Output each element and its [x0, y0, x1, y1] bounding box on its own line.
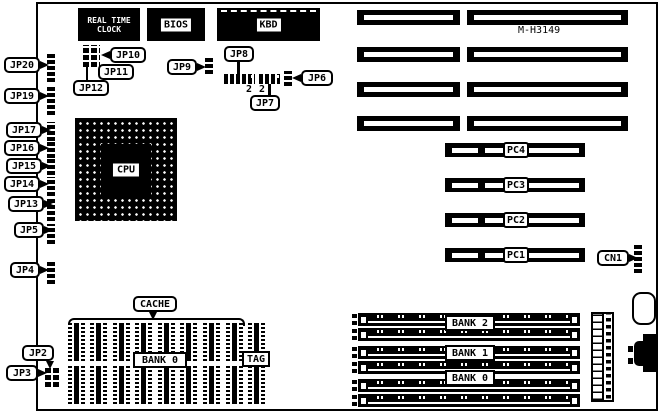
jp3-callout: JP3 — [6, 365, 38, 381]
pc2-label: PC2 — [503, 212, 529, 228]
cache-chip — [68, 323, 85, 361]
jp7-pins — [259, 74, 280, 84]
memory-bank0-label: BANK 0 — [445, 370, 495, 386]
cache-chip — [226, 366, 243, 404]
jp19-callout: JP19 — [4, 88, 40, 104]
isa-slot — [467, 116, 628, 131]
motherboard-diagram: REAL TIME CLOCK BIOS KBD M-H3149 PC4 PC3… — [0, 0, 660, 415]
keyboard-din-step — [634, 341, 645, 366]
jp6-callout: JP6 — [301, 70, 333, 86]
jp10-callout: JP10 — [110, 47, 146, 63]
jp20-callout: JP20 — [4, 57, 40, 73]
jp14-callout: JP14 — [4, 176, 40, 192]
jp17-pointer-icon — [42, 126, 51, 134]
cache-pointer-icon — [149, 312, 157, 320]
jp16-pointer-icon — [40, 144, 49, 152]
cache-chip — [135, 366, 152, 404]
cache-chip-column — [68, 323, 85, 404]
isa-slot — [357, 116, 460, 131]
jp8-pins — [224, 74, 255, 84]
cache-chip — [90, 323, 107, 361]
jp2-jp3-pins — [45, 367, 60, 387]
jp8-pin2-label: 2 — [246, 84, 252, 95]
isa-slot — [357, 82, 460, 97]
simm-slot — [358, 394, 580, 407]
rtc-chip-label: REAL TIME CLOCK — [78, 8, 140, 41]
kbd-chip-label: KBD — [256, 18, 280, 31]
jp17-callout: JP17 — [6, 122, 42, 138]
jp5-pointer-icon — [44, 226, 53, 234]
isa-slot — [467, 10, 628, 25]
cache-chip-column — [226, 323, 243, 404]
jp16-callout: JP16 — [4, 140, 40, 156]
pc4-label: PC4 — [503, 142, 529, 158]
board-model-label: M-H3149 — [518, 25, 560, 36]
jp9-pointer-icon — [197, 63, 206, 71]
isa-slot — [357, 10, 460, 25]
jp13-callout: JP13 — [8, 196, 44, 212]
jp6-pins — [284, 71, 292, 86]
jp9-pins — [205, 57, 213, 74]
bios-chip: BIOS — [147, 8, 205, 41]
power-connector — [591, 312, 614, 402]
isa-slot — [357, 47, 460, 62]
keyboard-din-pin — [628, 346, 633, 352]
jp4-callout: JP4 — [10, 262, 40, 278]
kbd-dashed-line — [221, 10, 316, 12]
jp3-pointer-icon — [38, 369, 47, 377]
jp19-pointer-icon — [40, 92, 49, 100]
jp2-callout: JP2 — [22, 345, 54, 361]
tag-label: TAG — [242, 351, 270, 367]
memory-bank1-label: BANK 1 — [445, 345, 495, 361]
pc3-label: PC3 — [503, 177, 529, 193]
bios-chip-label: BIOS — [161, 18, 191, 31]
jp15-callout: JP15 — [6, 158, 42, 174]
jp4-pointer-icon — [40, 266, 49, 274]
cache-chip — [203, 323, 220, 361]
cache-callout: CACHE — [133, 296, 177, 312]
cache-chip — [68, 366, 85, 404]
pci-slot-pc4: PC4 — [445, 143, 585, 157]
jp14-pointer-icon — [40, 180, 49, 188]
jp8-pointer-line — [237, 61, 240, 74]
rtc-chip: REAL TIME CLOCK — [78, 8, 140, 41]
cache-chip — [158, 366, 175, 404]
cache-bank0-label: BANK 0 — [133, 352, 187, 368]
jp12-callout: JP12 — [73, 80, 109, 96]
pci-slot-pc2: PC2 — [445, 213, 585, 227]
isa-slot — [467, 82, 628, 97]
jp9-callout: JP9 — [167, 59, 197, 75]
jp10-pointer-icon — [101, 51, 110, 59]
cache-chip — [226, 323, 243, 361]
cache-chip-column — [113, 323, 130, 404]
cache-chip — [113, 323, 130, 361]
cn1-pointer-icon — [629, 254, 638, 262]
memory-bank2-label: BANK 2 — [445, 315, 495, 331]
cache-chip-column — [90, 323, 107, 404]
jp8-callout: JP8 — [224, 46, 254, 62]
cn1-callout: CN1 — [597, 250, 629, 266]
pci-slot-pc1: PC1 — [445, 248, 585, 262]
jp11-callout: JP11 — [98, 64, 134, 80]
keyboard-controller-chip: KBD — [217, 8, 320, 41]
keyboard-din-body — [643, 334, 658, 372]
jp19-pins — [47, 86, 55, 115]
cache-chip — [113, 366, 130, 404]
jp6-pointer-icon — [292, 74, 301, 82]
isa-slot — [467, 47, 628, 62]
jp13-pointer-icon — [44, 200, 53, 208]
cpu-label: CPU — [113, 163, 139, 176]
cache-chip-column — [203, 323, 220, 404]
rtc-line2: CLOCK — [97, 25, 121, 34]
cache-chip — [203, 366, 220, 404]
jp20-pointer-icon — [40, 61, 49, 69]
cache-chip — [180, 366, 197, 404]
cache-chip — [90, 366, 107, 404]
jp7-pin2-label: 2 — [259, 84, 265, 95]
jp5-callout: JP5 — [14, 222, 44, 238]
jp10-jp11-jp12-pins — [83, 45, 100, 67]
tag-chip — [248, 366, 265, 404]
cpu-socket: CPU — [75, 118, 177, 221]
jp12-pointer-line — [86, 65, 88, 81]
keyboard-din-pin — [628, 358, 633, 364]
rtc-line1: REAL TIME — [87, 16, 130, 25]
jp7-callout: JP7 — [250, 95, 280, 111]
pc1-label: PC1 — [503, 247, 529, 263]
jp15-pointer-icon — [42, 162, 51, 170]
battery-outline — [632, 292, 656, 325]
pci-slot-pc3: PC3 — [445, 178, 585, 192]
jp2-pointer-icon — [46, 361, 54, 369]
